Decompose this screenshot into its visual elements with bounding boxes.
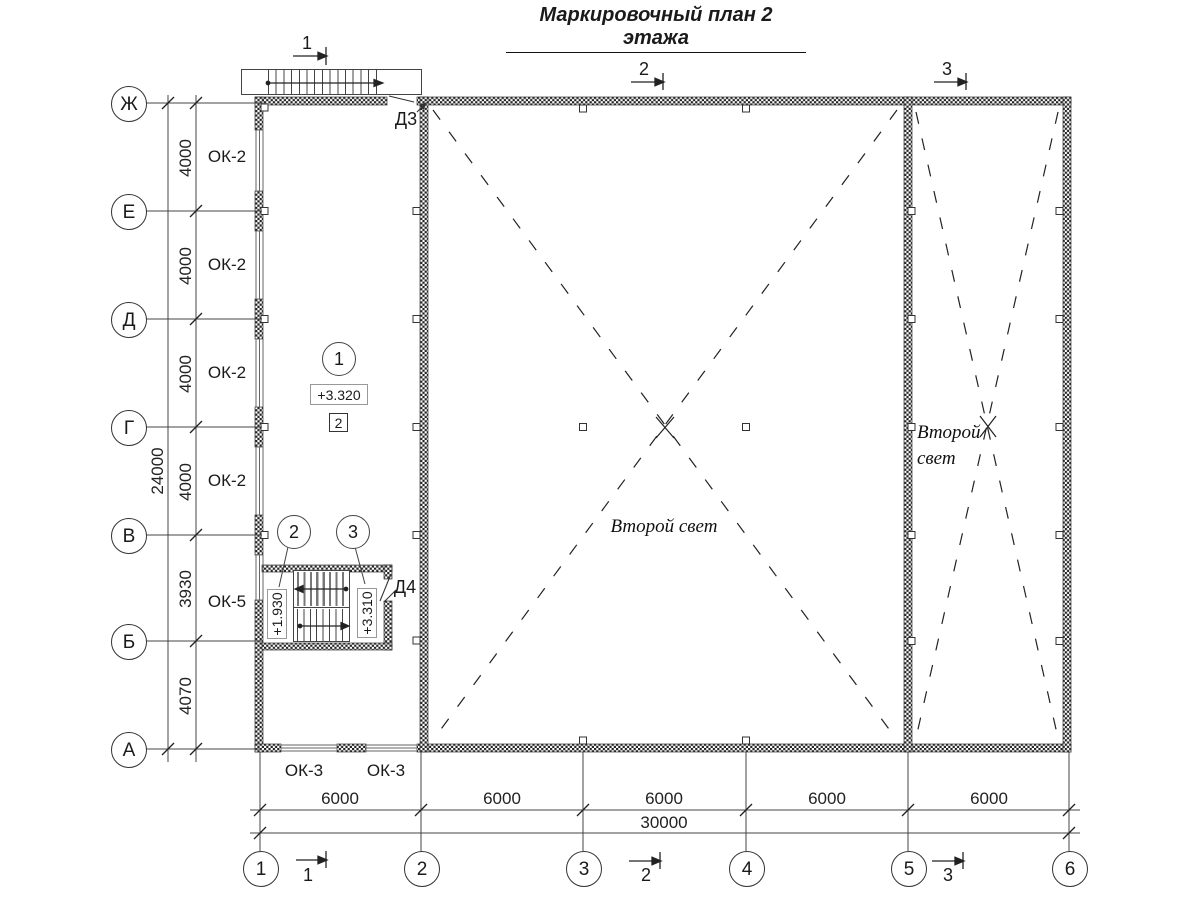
section-label-2-top: 2 [632, 59, 656, 80]
dim-left-3: 4000 [176, 339, 196, 409]
dim-bottom-2: 6000 [467, 789, 537, 809]
window-label-ok2: ОК-2 [197, 147, 257, 167]
exterior-stair-top [241, 69, 422, 95]
dim-left-2: 4000 [176, 231, 196, 301]
wall-left-lower [255, 600, 263, 752]
marker-circle-3: 3 [336, 515, 370, 549]
wall-top-right [417, 97, 1071, 105]
window-label-ok2: ОК-2 [197, 363, 257, 383]
floor-plan-canvas: Маркировочный план 2 этажа Ж Е Д Г В Б А… [0, 0, 1200, 900]
void-label-right-bay: Второй свет [917, 420, 993, 471]
axis-row-b: Б [111, 624, 147, 660]
wall-bottom-pier [255, 744, 281, 752]
axis-row-e: Е [111, 194, 147, 230]
section-marks [293, 47, 967, 869]
axis-row-d: Д [111, 302, 147, 338]
axis-col-1: 1 [243, 851, 279, 887]
dim-bottom-4: 6000 [792, 789, 862, 809]
wall-top-left [255, 97, 387, 105]
dim-bottom-total: 30000 [624, 813, 704, 833]
stair-flight-lower [297, 609, 348, 642]
section-label-3-top: 3 [935, 59, 959, 80]
axis-row-v: В [111, 518, 147, 554]
axis-row-g: Г [111, 410, 147, 446]
drawing-title: Маркировочный план 2 этажа [506, 4, 806, 53]
axis-col-3: 3 [566, 851, 602, 887]
marker-circle-1: 1 [322, 342, 356, 376]
section-label-1-bottom: 1 [296, 865, 320, 886]
dim-left-1: 4000 [176, 123, 196, 193]
dim-left-total: 24000 [148, 436, 168, 506]
window-glazing-lines [256, 130, 417, 751]
window-label-ok3: ОК-3 [356, 761, 416, 781]
wall-right [1063, 97, 1071, 752]
stairwell-stair [293, 570, 350, 642]
wall-axis2 [420, 97, 428, 752]
wall-left-pier [255, 97, 263, 130]
stair-flight-upper [297, 572, 348, 606]
dim-left-5: 3930 [176, 554, 196, 624]
dim-bottom-1: 6000 [305, 789, 375, 809]
wall-left-pier [255, 407, 263, 447]
dim-left-6: 4070 [176, 661, 196, 731]
window-label-ok5: ОК-5 [197, 592, 257, 612]
void-label-main-hall: Второй свет [594, 516, 734, 538]
stairwell-wall-right [384, 601, 392, 650]
wall-axis5 [904, 97, 912, 752]
dim-bottom-5: 6000 [954, 789, 1024, 809]
window-label-ok3: ОК-3 [274, 761, 334, 781]
window-label-ok2: ОК-2 [197, 471, 257, 491]
window-label-ok2: ОК-2 [197, 255, 257, 275]
section-label-1-top: 1 [295, 33, 319, 54]
marker-circle-2: 2 [277, 515, 311, 549]
stairwell-wall-bottom [262, 643, 392, 650]
axis-row-zh: Ж [111, 86, 147, 122]
wall-left-pier [255, 515, 263, 555]
door-label-d4: Д4 [387, 577, 423, 598]
axis-col-5: 5 [891, 851, 927, 887]
wall-left-pier [255, 191, 263, 231]
stair-treads [268, 70, 383, 94]
free-column [743, 424, 750, 431]
section-label-2-bottom: 2 [634, 865, 658, 886]
free-column [580, 424, 587, 431]
level-mark-upper-landing: +3.310 [357, 588, 377, 638]
wall-left-pier [255, 299, 263, 339]
wall-bottom-pier [337, 744, 366, 752]
axis-lines [146, 103, 1069, 851]
axis-col-6: 6 [1052, 851, 1088, 887]
dim-left-4: 4000 [176, 447, 196, 517]
axis-col-2: 2 [404, 851, 440, 887]
wall-bottom-main [417, 744, 1071, 752]
marker-square-2: 2 [329, 413, 348, 432]
door-label-d3: Д3 [388, 109, 424, 130]
level-mark-floor: +3.320 [310, 384, 368, 405]
stair-landing-line [294, 607, 349, 608]
door-leaves [380, 96, 426, 602]
door-d3-leaf [389, 96, 414, 102]
level-mark-mid-landing: +1.930 [267, 589, 287, 639]
dim-bottom-3: 6000 [629, 789, 699, 809]
axis-row-a: А [111, 732, 147, 768]
section-label-3-bottom: 3 [936, 865, 960, 886]
axis-col-4: 4 [729, 851, 765, 887]
